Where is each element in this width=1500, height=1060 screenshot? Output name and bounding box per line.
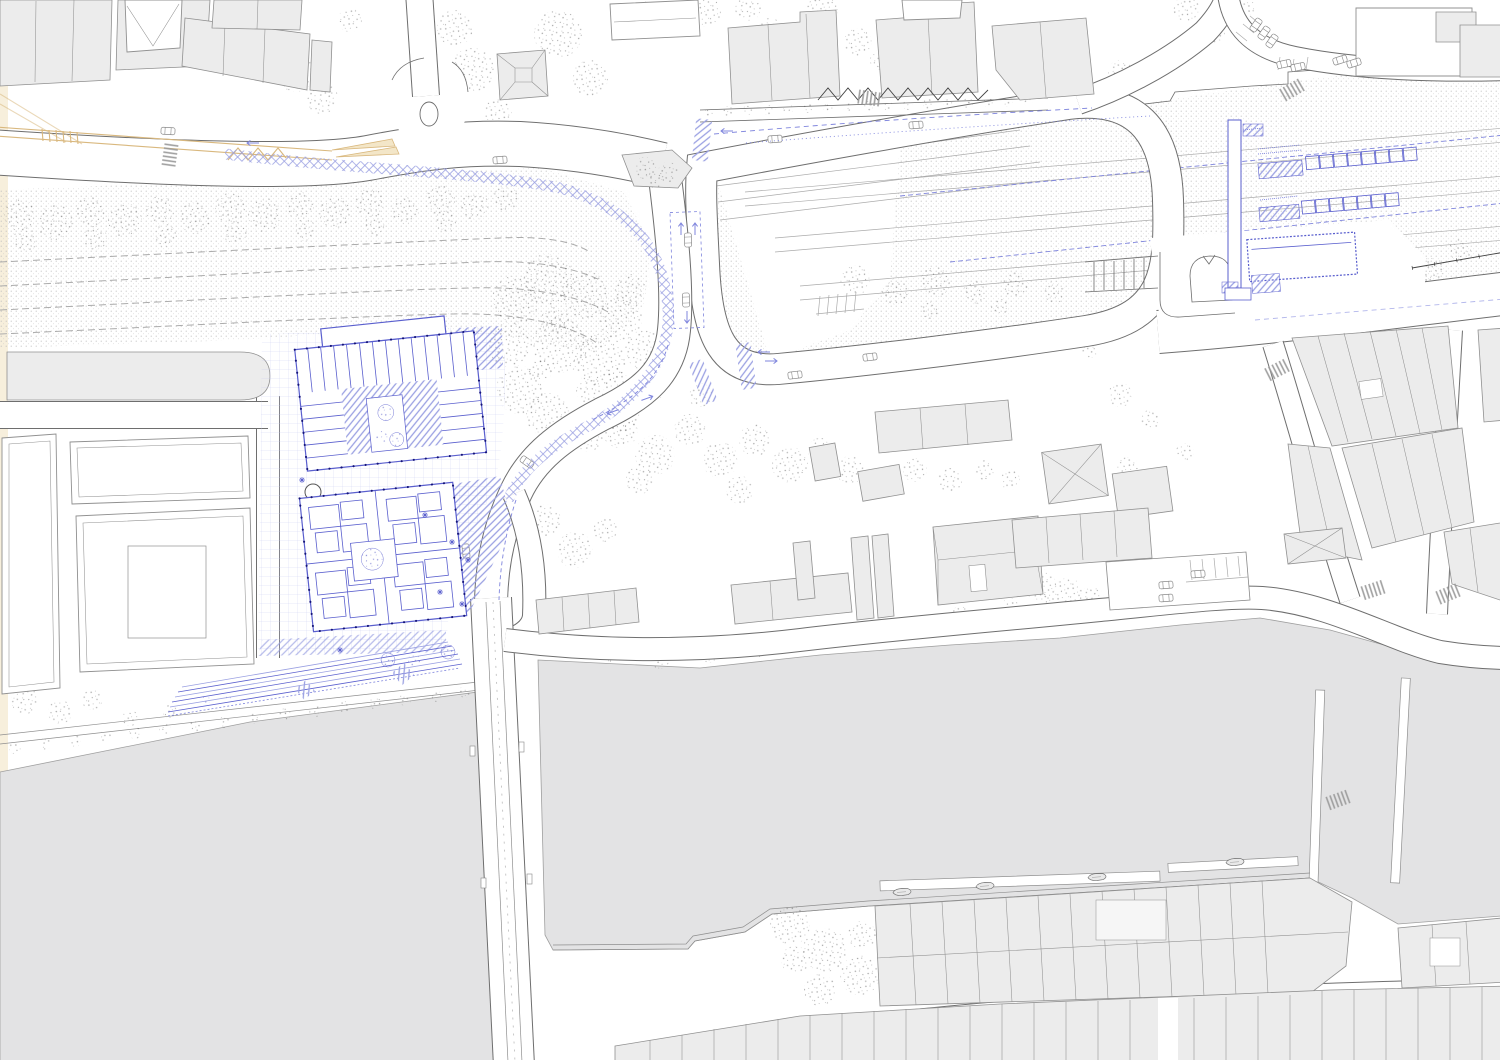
- car-icon: [1159, 581, 1173, 589]
- car-icon: [682, 293, 689, 307]
- car-icon: [768, 135, 782, 143]
- courtyard-void: [128, 546, 206, 638]
- street-notch: [1158, 998, 1178, 1060]
- grass-median-strip: [7, 352, 270, 400]
- station-access-bar: [1228, 120, 1241, 288]
- car-icon: [863, 353, 878, 362]
- car-icon: [161, 127, 175, 135]
- proposed-building-a-plan: [293, 313, 487, 471]
- site-plan-sheet: [0, 0, 1500, 1060]
- car-icon: [788, 371, 803, 380]
- car-icon: [1191, 570, 1205, 578]
- riverside-parking-lot: [1106, 552, 1250, 610]
- hip-roof-building: [497, 50, 548, 100]
- car-icon: [493, 156, 507, 164]
- proposed-building-b-plan: [300, 482, 467, 631]
- car-icon: [1159, 594, 1173, 602]
- car-icon: [909, 121, 923, 129]
- car-icon: [684, 233, 691, 247]
- site-plan-canvas: [0, 0, 1500, 1060]
